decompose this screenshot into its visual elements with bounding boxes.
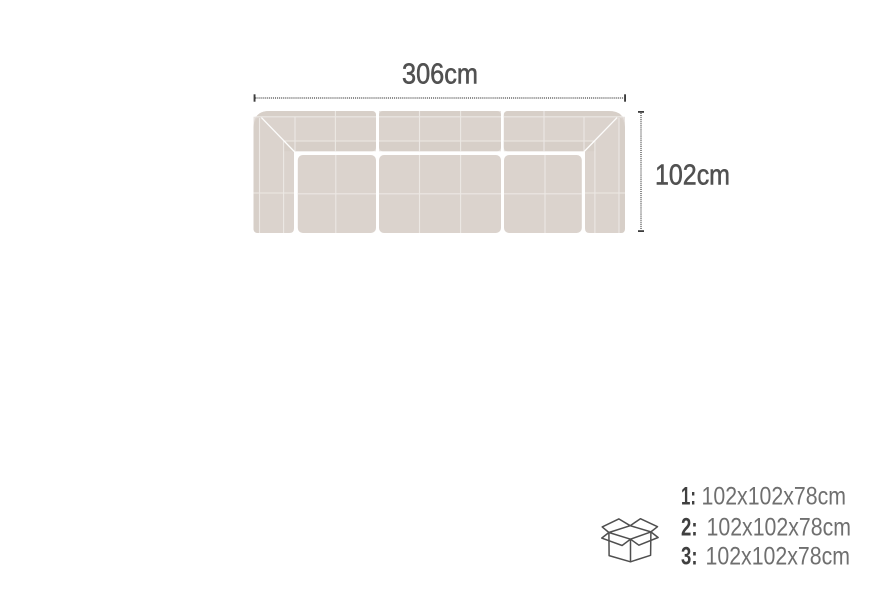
svg-text:102x102x78cm: 102x102x78cm <box>702 482 847 510</box>
svg-text:102x102x78cm: 102x102x78cm <box>707 513 852 541</box>
svg-text:2:: 2: <box>681 513 698 541</box>
svg-text:306cm: 306cm <box>402 59 478 91</box>
svg-text:102x102x78cm: 102x102x78cm <box>706 543 851 571</box>
svg-text:102cm: 102cm <box>655 160 730 192</box>
svg-text:1:: 1: <box>681 482 696 510</box>
svg-text:3:: 3: <box>681 543 698 571</box>
